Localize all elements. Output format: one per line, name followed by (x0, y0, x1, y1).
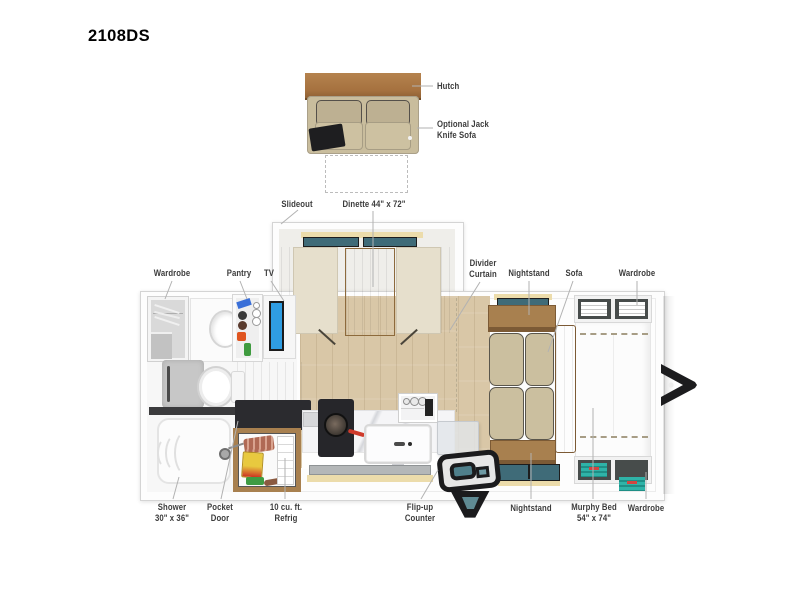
tv-screen (269, 301, 284, 351)
dinette-window-left (303, 237, 359, 247)
kitchen-sink (364, 424, 432, 464)
folded-clothes-left (581, 302, 607, 316)
sink-knob (408, 442, 412, 446)
range-cooktop (318, 399, 354, 457)
kitchen-window-pane (309, 465, 431, 475)
pantry-item-green (244, 343, 251, 356)
callout-slideout: Slideout (271, 199, 323, 210)
callout-pocket-door: Pocket Door (194, 502, 246, 523)
wardrobe-overhead-bottom (575, 457, 651, 483)
wardrobe-bottom-divider (611, 460, 615, 480)
callout-nightstand-top: Nightstand (499, 268, 559, 279)
toilet-tank (231, 371, 245, 403)
pantry-item-cans (238, 311, 247, 320)
sofa-cushion-tr (525, 333, 554, 386)
callout-sofa: Sofa (553, 268, 596, 279)
murphy-bed (575, 321, 651, 461)
fridge-chips-bag (241, 451, 264, 478)
bottom-window-mullion (528, 465, 530, 479)
dinette-window-right (363, 237, 417, 247)
callout-flip-up-counter: Flip-up Counter (394, 502, 446, 523)
kitchen-dark-counter (235, 400, 311, 430)
entry-step (448, 491, 492, 519)
dinette-bench-right (396, 247, 441, 334)
bath-door-handle (167, 366, 170, 402)
pantry-item-orange (237, 332, 246, 341)
pantry-item-blue (236, 298, 251, 309)
flip-up-counter-panel (437, 421, 479, 455)
bath-wardrobe (148, 297, 188, 361)
sofa-cushion-br (525, 387, 554, 440)
callout-wardrobe-top: Wardrobe (603, 268, 672, 279)
entry-door-window (449, 461, 477, 481)
sink-faucet (394, 442, 405, 446)
folded-clothes-right (619, 302, 645, 316)
callout-hutch: Hutch (437, 81, 459, 92)
hitch-pin-hole (668, 382, 673, 387)
range-burner (324, 413, 348, 437)
bedroom-bottom-window-valance (498, 481, 560, 486)
hitch-a-frame (661, 363, 699, 407)
callout-wardrobe-front: Wardrobe (138, 268, 207, 279)
wardrobe-top-divider (611, 299, 615, 319)
wardrobe-shelf (151, 332, 172, 359)
model-number-title: 2108DS (88, 27, 150, 46)
refrigerator (233, 428, 301, 492)
teal-clothes-left (581, 463, 607, 477)
callout-refrigerator: 10 cu. ft. Refrig (252, 502, 321, 523)
dinette-table (345, 248, 395, 336)
callout-optional-sofa: Optional Jack Knife Sofa (437, 119, 489, 140)
entry-door-window-small (476, 466, 490, 478)
kitchen-window-valance (307, 475, 433, 482)
hitch-shape (661, 364, 697, 406)
dinette-bench-left (293, 247, 338, 334)
callout-dinette: Dinette 44" x 72" (322, 199, 425, 210)
optional-sofa-footprint (325, 155, 408, 193)
sofa-backrest (555, 325, 576, 453)
entry-door (436, 449, 502, 493)
spice-shelf-line (401, 408, 424, 409)
nightstand-bottom (490, 440, 556, 464)
callout-nightstand-bottom: Nightstand (501, 503, 561, 514)
fridge-green-item (246, 477, 264, 485)
spice-jars-row (403, 398, 410, 405)
murphy-bed-dash-top (580, 333, 648, 335)
shower-head (219, 448, 231, 460)
shower-ridge-3 (174, 430, 200, 476)
sofa-button (408, 136, 412, 140)
spice-dark-box (425, 399, 433, 416)
sofa-cushion-tl (489, 333, 524, 386)
bedroom-bottom-window (498, 464, 560, 481)
callout-tv: TV (252, 268, 286, 279)
spice-rack (399, 394, 437, 422)
pantry-cabinet (233, 295, 262, 361)
pantry-door-knobs (253, 302, 260, 309)
murphy-bed-dash-bottom (580, 436, 648, 438)
dinette-bench-right-back (441, 247, 453, 333)
teal-clothes-right (619, 477, 645, 491)
entry-step-tread (462, 497, 479, 509)
sofa-cushion-bl (489, 387, 524, 440)
divider-curtain-track (456, 298, 457, 412)
nightstand-top (488, 305, 556, 332)
murphy-bed-seam (613, 335, 614, 435)
callout-wardrobe-bottom: Wardrobe (612, 503, 681, 514)
fridge-door-shelves (277, 436, 294, 485)
pocket-door-track (149, 407, 235, 415)
sofa-seat-cushion-right (365, 122, 411, 150)
wardrobe-overhead-top (575, 296, 651, 322)
toilet-bowl (197, 366, 235, 408)
floorplan-canvas: 2108DS (0, 0, 800, 600)
jack-knife-sofa (307, 96, 419, 154)
